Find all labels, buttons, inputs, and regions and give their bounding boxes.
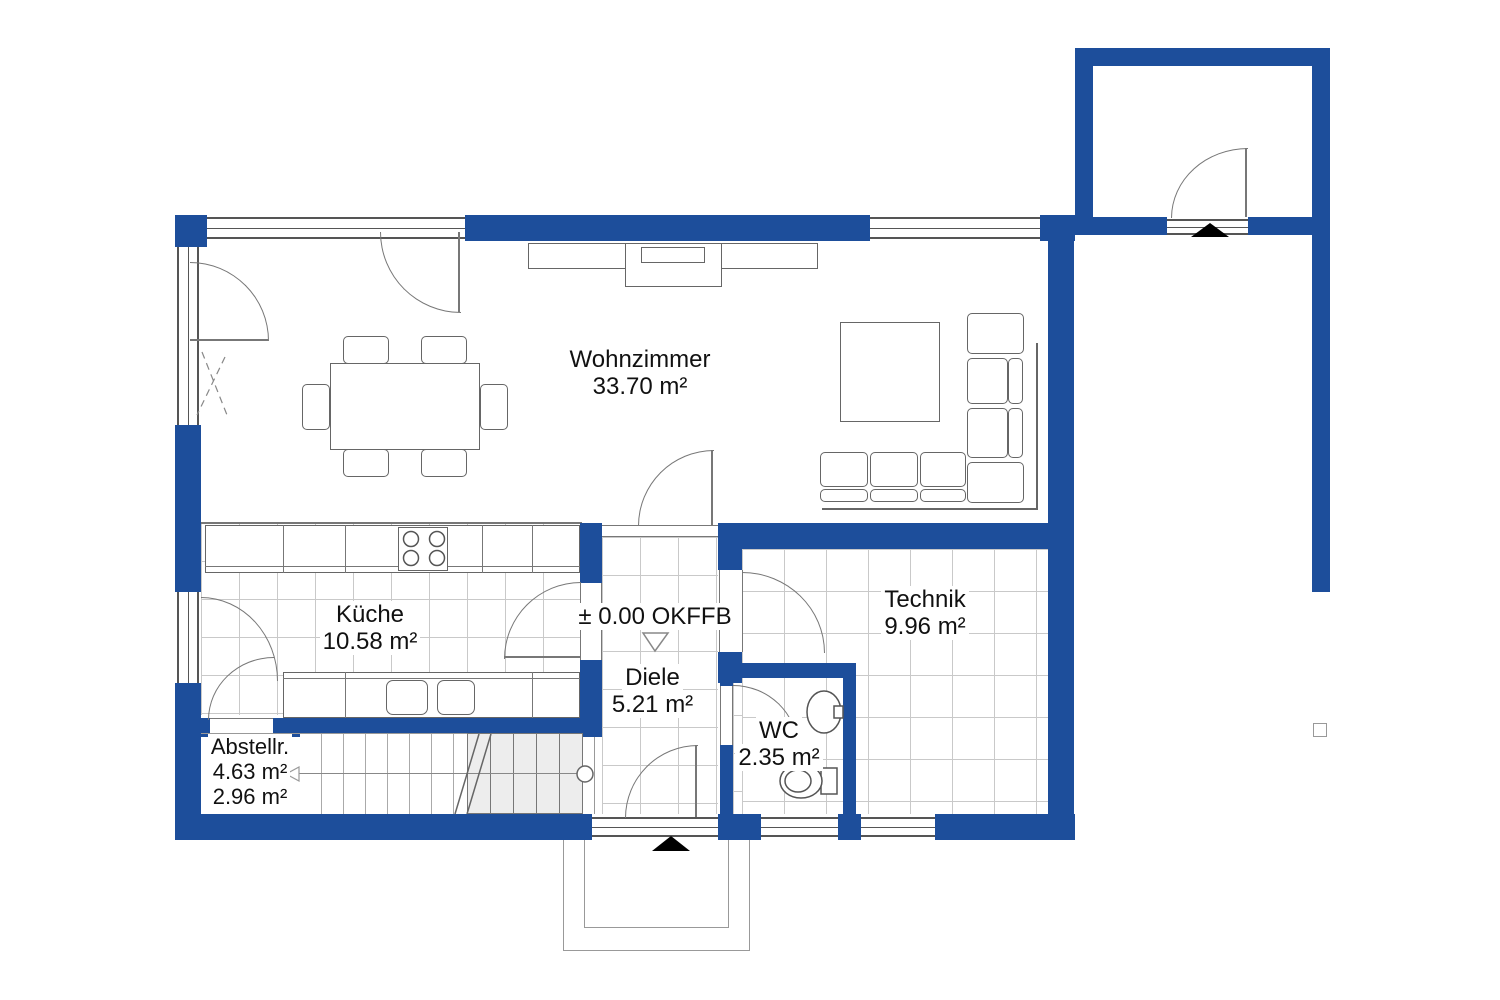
stair-center-line: [290, 773, 583, 774]
vestibule-wall-top: [1075, 48, 1330, 66]
wall-living-kitchen-line: [201, 522, 582, 524]
vestibule-wall-bottom-right: [1248, 217, 1312, 235]
dining-chair: [421, 336, 467, 364]
wall-bottom-left: [175, 814, 592, 840]
sofa-cushion: [967, 313, 1024, 354]
sofa-cushion: [967, 462, 1024, 503]
sofa-backrest: [1008, 408, 1023, 458]
kitchen-sink-basin: [437, 680, 475, 715]
window-top-right: [870, 217, 1040, 239]
coffee-table: [840, 322, 940, 422]
room-area: 2.35 m²: [735, 744, 822, 771]
window-bottom-wc: [761, 817, 838, 837]
room-area: 4.63 m²: [210, 759, 291, 784]
kitchen-sink-basin: [386, 680, 428, 715]
room-label-wohnzimmer: Wohnzimmer 33.70 m²: [535, 346, 745, 400]
stove: [398, 527, 448, 571]
level-marker-text: ± 0.00 OKFFB: [575, 603, 734, 630]
room-label-technik: Technik 9.96 m²: [855, 586, 995, 640]
entrance-door-threshold: [592, 817, 718, 837]
room-name: Küche: [333, 601, 407, 628]
sofa-outline-bottom: [822, 508, 1038, 510]
living-hall-door-leaf: [711, 450, 713, 525]
room-area: 33.70 m²: [590, 373, 691, 400]
symbol-overlay: [0, 0, 1500, 1000]
sofa-outline-right: [1036, 343, 1038, 510]
terrace-door-arc-left: [190, 262, 269, 341]
room-area: 5.21 m²: [609, 691, 696, 718]
wall-top-left-corner: [175, 215, 207, 247]
room-name: Diele: [622, 664, 683, 691]
room-label-wc: WC 2.35 m²: [723, 717, 835, 771]
kitchen-counter-divider: [345, 672, 346, 718]
wall-top-main: [465, 215, 870, 241]
dining-chair: [480, 384, 508, 430]
wall-kitchen-hall-upper: [580, 523, 602, 583]
wall-living-technik: [718, 523, 1048, 549]
terrace-door-arc-top: [380, 232, 461, 313]
wall-wc-right: [843, 663, 856, 814]
vestibule-wall-right: [1312, 66, 1330, 592]
stair-hall-divider: [594, 737, 595, 814]
wall-wc-top: [728, 663, 855, 678]
sofa-cushion: [820, 452, 868, 487]
room-label-diele: Diele 5.21 m²: [595, 664, 710, 718]
sofa-cushion: [870, 452, 918, 487]
room-area: 10.58 m²: [320, 628, 421, 655]
kitchen-counter-bottom-edge: [283, 678, 580, 679]
entrance-door-leaf: [695, 745, 697, 817]
kitchen-counter-divider: [532, 525, 533, 573]
room-name: Technik: [881, 586, 968, 613]
sofa-front-cushion: [870, 489, 918, 502]
kitchen-counter-divider: [283, 525, 284, 573]
dining-chair: [302, 384, 330, 430]
kitchen-counter-top-edge: [205, 566, 580, 567]
dining-chair: [343, 449, 389, 477]
room-label-kueche: Küche 10.58 m²: [295, 601, 445, 655]
room-name: Abstellr.: [208, 734, 292, 759]
vestibule-door-leaf: [1245, 148, 1247, 217]
wall-hall-technik-upper: [718, 549, 742, 570]
stair-under-treads: [300, 734, 467, 814]
sofa-cushion: [920, 452, 966, 487]
sofa-cushion: [967, 358, 1008, 404]
room-name: WC: [756, 717, 802, 744]
room-name: Wohnzimmer: [567, 346, 714, 373]
wall-bottom-mid2: [838, 814, 861, 840]
terrace-door-leaf-top: [458, 232, 460, 312]
floor-plan: Wohnzimmer 33.70 m² Küche 10.58 m² ± 0.0…: [0, 0, 1500, 1000]
sofa-front-cushion: [820, 489, 868, 502]
wall-right-house: [1048, 215, 1074, 840]
sofa-front-cushion: [920, 489, 966, 502]
sofa-cushion: [967, 408, 1008, 458]
vestibule-door-threshold: [1167, 219, 1248, 235]
sofa-backrest: [1008, 358, 1023, 404]
window-left-kitchen: [177, 592, 199, 683]
dining-chair: [343, 336, 389, 364]
living-hall-door-arc: [638, 450, 714, 526]
dining-table: [330, 363, 480, 450]
kitchen-hall-door-leaf: [504, 656, 580, 658]
room-area2: 2.96 m²: [210, 784, 291, 809]
porch-inner: [584, 840, 729, 928]
wall-left-mid: [175, 425, 201, 592]
french-door-dashed-lines: [197, 352, 227, 415]
kitchen-counter-divider: [345, 525, 346, 573]
vestibule-wall-bottom-left: [1093, 217, 1167, 235]
window-bottom-technik: [861, 817, 935, 837]
level-marker-label: ± 0.00 OKFFB: [570, 603, 740, 630]
column-marker: [1313, 723, 1327, 737]
kitchen-counter-divider: [532, 672, 533, 718]
kitchen-counter-divider: [482, 525, 483, 573]
dining-chair: [421, 449, 467, 477]
wall-wc-left-upper: [720, 678, 733, 686]
terrace-door-leaf-left: [190, 339, 268, 341]
sideboard-inner: [641, 247, 705, 263]
living-hall-threshold: [602, 525, 718, 537]
wall-bottom-mid1: [718, 814, 761, 840]
vestibule-door-arc: [1171, 148, 1248, 218]
vestibule-wall-left: [1075, 66, 1093, 235]
room-area: 9.96 m²: [881, 613, 968, 640]
room-label-abstellraum: Abstellr. 4.63 m² 2.96 m²: [200, 734, 300, 809]
